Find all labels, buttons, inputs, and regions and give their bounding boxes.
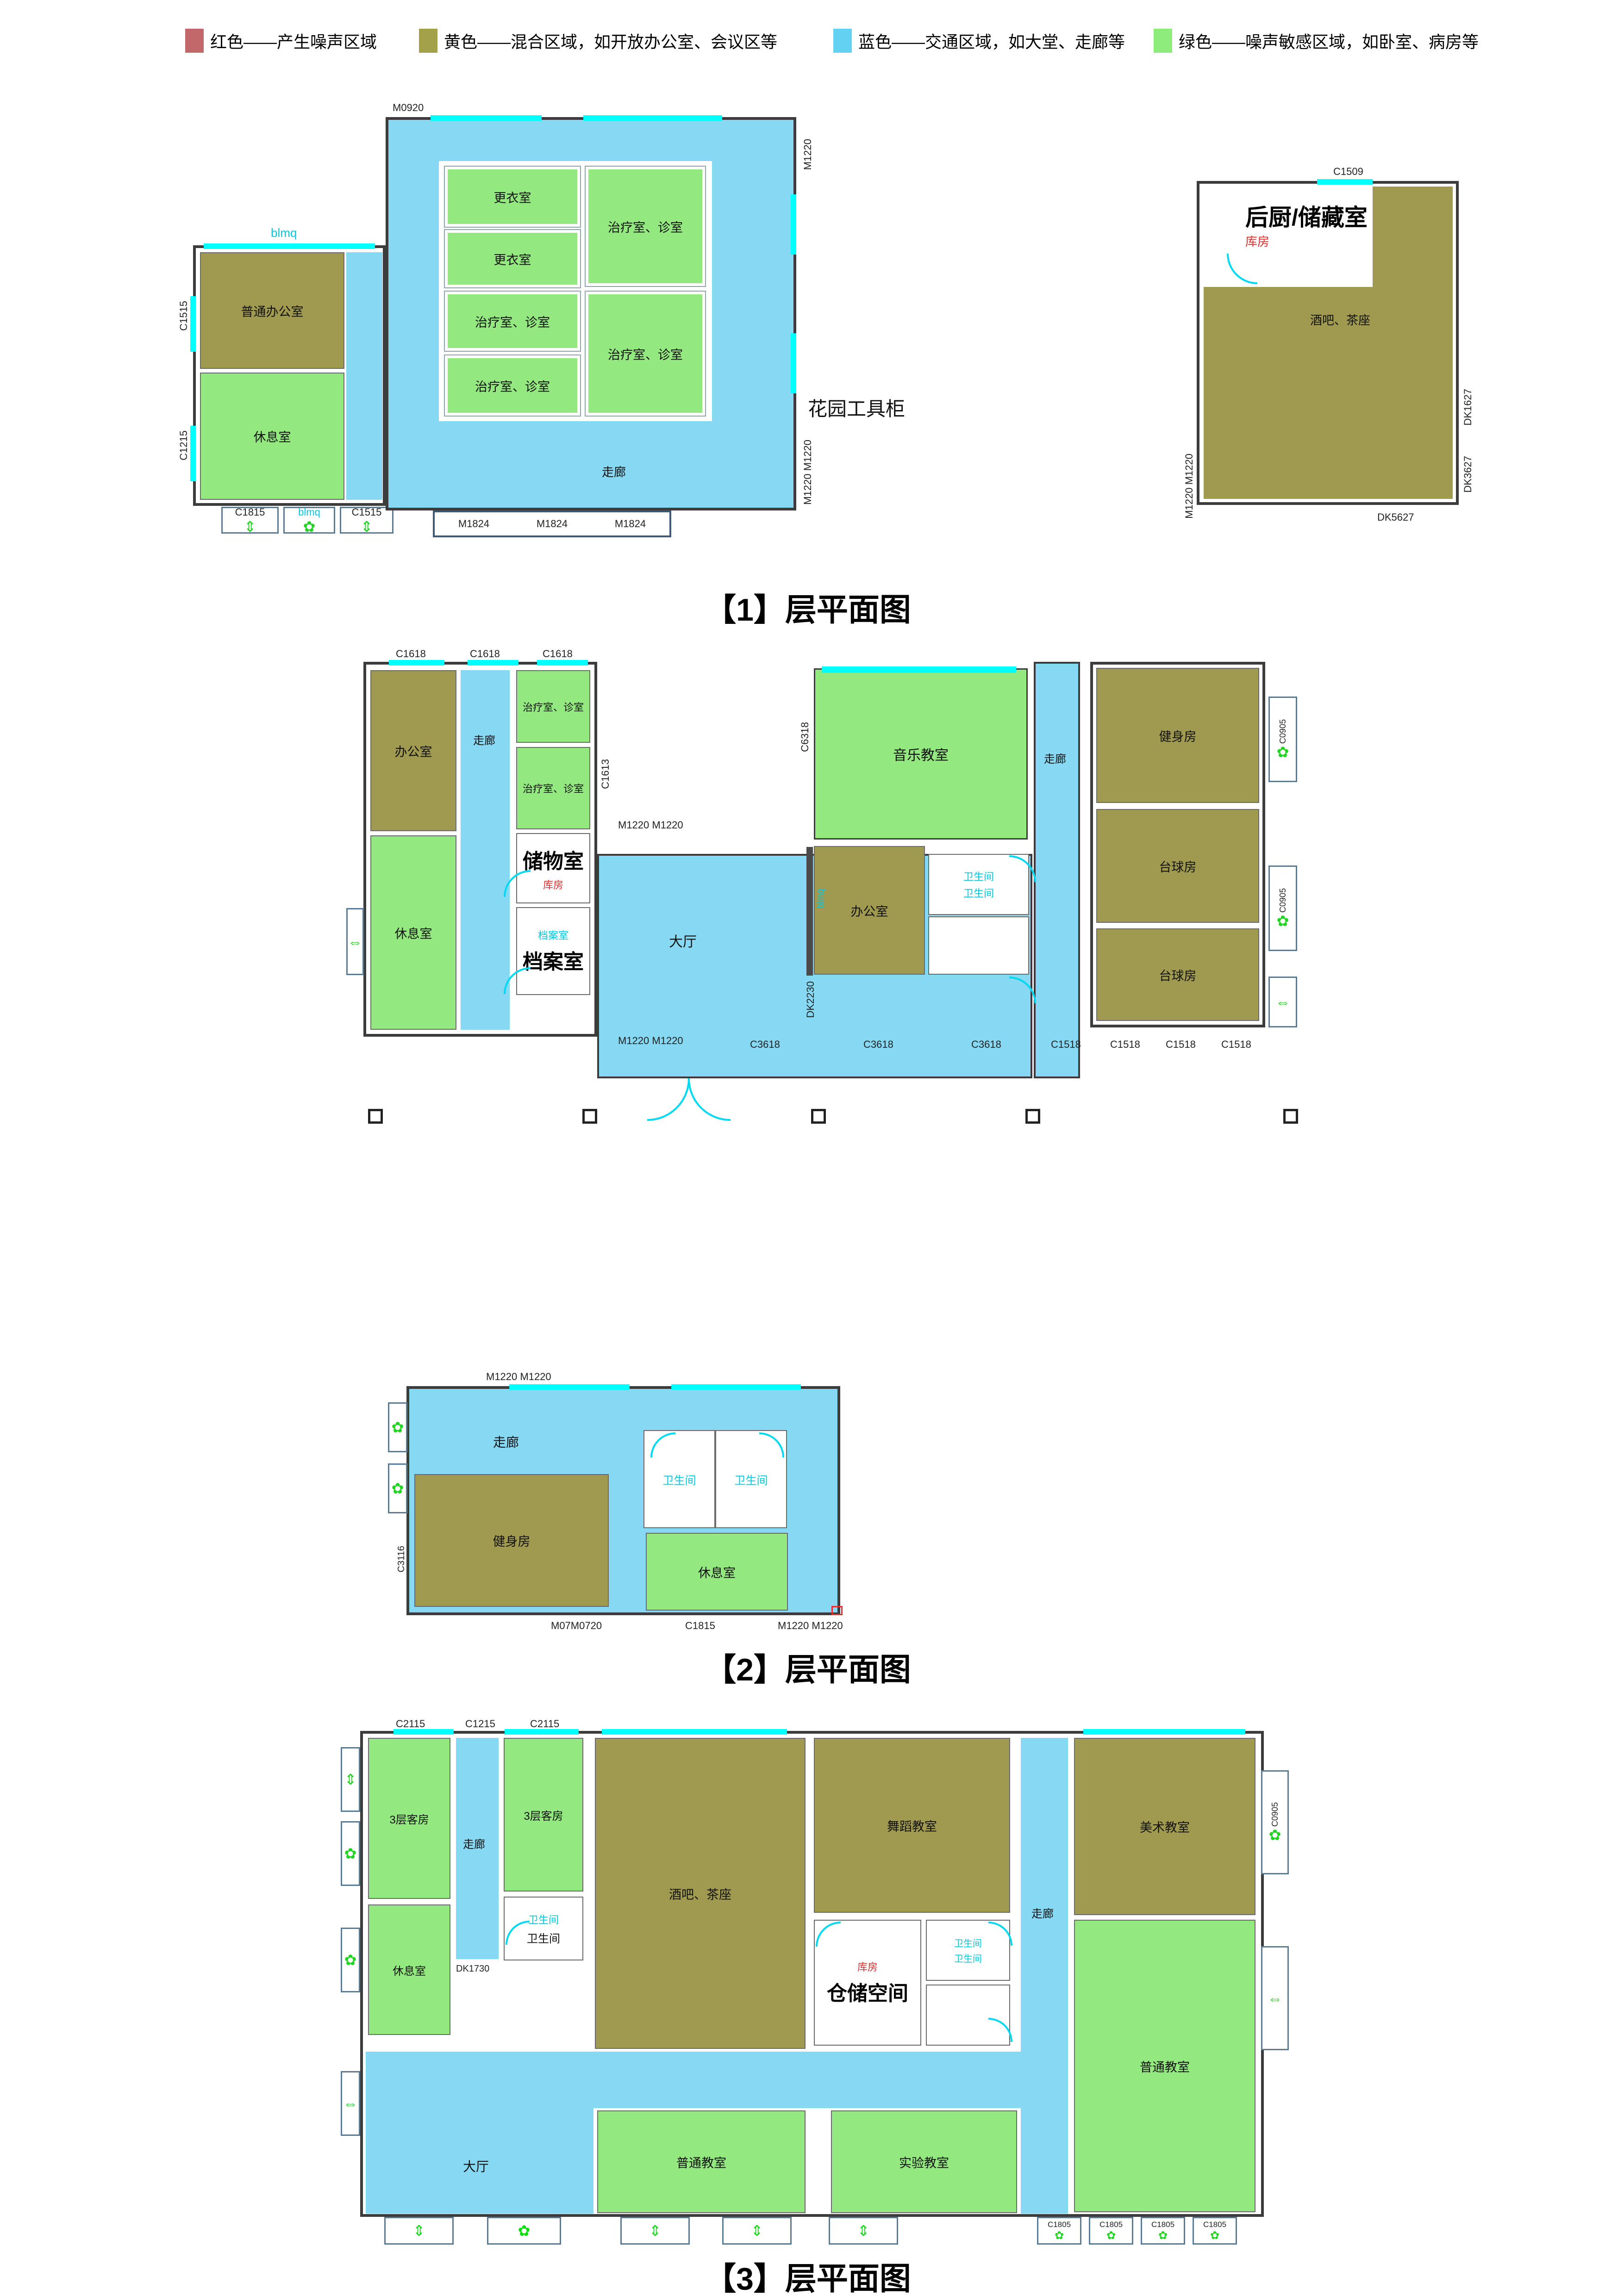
room-treatment-4: 治疗室、诊室 bbox=[586, 292, 705, 416]
window-strip bbox=[190, 296, 196, 352]
window-bay: ⇔ bbox=[346, 908, 364, 975]
window-mark: C1805 bbox=[1151, 2220, 1174, 2229]
legend-label: 红色——产生噪声区域 bbox=[210, 29, 377, 53]
wall-bar bbox=[806, 847, 813, 976]
room-treatment-2: 治疗室、诊室 bbox=[445, 355, 580, 416]
window-strip bbox=[537, 660, 588, 666]
yellow-swatch bbox=[419, 29, 437, 53]
column-marker bbox=[1283, 1109, 1298, 1124]
window-mark: C1518 bbox=[1221, 1039, 1251, 1051]
entry-porch: M1824 M1824 M1824 bbox=[433, 510, 671, 537]
window-bay: C1805 ✿ bbox=[1037, 2217, 1081, 2245]
door-mark: M1220 M1220 bbox=[618, 819, 683, 831]
column-marker bbox=[582, 1109, 597, 1124]
room-office-2f-center: 办公室 bbox=[814, 846, 925, 975]
window-bay: ✿ bbox=[341, 1928, 360, 1992]
window-bay: ⇔ bbox=[1268, 977, 1297, 1027]
warehouse-label: 仓储空间 bbox=[827, 1977, 908, 2006]
window-mark: C1805 bbox=[1048, 2220, 1071, 2229]
window-mark: DK1627 bbox=[1462, 389, 1474, 426]
window-mark-blmq: blmq bbox=[816, 889, 826, 908]
toilet-label: 卫生间 bbox=[963, 869, 994, 884]
window-mark: C1618 bbox=[396, 648, 426, 660]
window-mark: C1518 bbox=[1110, 1039, 1140, 1051]
room-changing-2: 更衣室 bbox=[445, 230, 580, 287]
corridor-label: 走廊 bbox=[602, 463, 626, 480]
annex-corridor-area bbox=[346, 252, 382, 500]
corridor-label: 走廊 bbox=[1031, 1904, 1054, 1921]
door-mark: M1220 M1220 bbox=[618, 1035, 683, 1047]
flower-icon: ✿ bbox=[344, 1953, 357, 1967]
arrow-icon: ⇕ bbox=[649, 2223, 662, 2238]
corridor-3f-right bbox=[1021, 1738, 1068, 2214]
toilet-label: 卫生间 bbox=[735, 1471, 768, 1487]
room-rest: 休息室 bbox=[200, 373, 344, 500]
window-bay: C1515 ⇕ bbox=[340, 507, 394, 534]
room-classroom-3f-mid: 普通教室 bbox=[597, 2110, 806, 2213]
window-strip bbox=[468, 660, 518, 666]
arrow-icon: ⇔ bbox=[348, 934, 362, 949]
window-mark: DK5627 bbox=[1377, 511, 1414, 523]
window-bay: ⇕ bbox=[341, 1747, 360, 1812]
arrow-icon: ⇕ bbox=[361, 519, 373, 534]
window-mark-blmq: blmq bbox=[271, 226, 297, 240]
window-mark: C0905 bbox=[1278, 888, 1288, 913]
window-mark: C1515 bbox=[178, 301, 190, 331]
window-bay: ✿ bbox=[388, 1463, 407, 1513]
flower-icon: ✿ bbox=[303, 519, 316, 534]
window-bay: ⇔ bbox=[341, 2071, 360, 2136]
legend-item-red: 红色——产生噪声区域 bbox=[185, 29, 377, 53]
window-mark: C1613 bbox=[600, 759, 612, 789]
arrow-icon: ⇕ bbox=[751, 2223, 763, 2238]
window-strip bbox=[509, 1384, 630, 1390]
red-swatch bbox=[185, 29, 204, 53]
corridor-label: 走廊 bbox=[473, 731, 495, 747]
window-bay: blmq ✿ bbox=[283, 507, 335, 534]
room-rest-2f: 休息室 bbox=[370, 835, 456, 1030]
room-bar-3f: 酒吧、茶座 bbox=[595, 1738, 806, 2049]
window-mark: DK1730 bbox=[456, 1964, 489, 1974]
toilet-label: 卫生间 bbox=[663, 1471, 696, 1487]
blue-swatch bbox=[833, 29, 852, 53]
room-dance-3f: 舞蹈教室 bbox=[814, 1738, 1010, 1913]
room-lab-3f: 实验教室 bbox=[831, 2110, 1017, 2213]
window-mark: C1515 bbox=[352, 506, 382, 518]
corridor-label: 走廊 bbox=[493, 1432, 519, 1451]
corridor-label: 走廊 bbox=[1044, 750, 1066, 766]
room-changing-1: 更衣室 bbox=[445, 167, 580, 227]
window-strip bbox=[791, 333, 796, 393]
room-rest-3f: 休息室 bbox=[368, 1904, 450, 2035]
room-music-2f: 音乐教室 bbox=[814, 668, 1028, 840]
window-mark: DK2230 bbox=[805, 981, 817, 1018]
room-rest-annex2f: 休息室 bbox=[646, 1533, 788, 1611]
arrow-icon: ⇕ bbox=[413, 2223, 425, 2238]
column-marker bbox=[811, 1109, 826, 1124]
room-bar-tea-area-upper bbox=[1373, 187, 1453, 293]
window-strip bbox=[204, 243, 375, 249]
window-mark: C1805 bbox=[1099, 2220, 1123, 2229]
corridor-2f-right bbox=[1034, 662, 1080, 1078]
legend-label: 绿色——噪声敏感区域，如卧室、病房等 bbox=[1179, 29, 1479, 53]
flower-icon: ✿ bbox=[1055, 2230, 1064, 2241]
storage-label: 储物室 bbox=[523, 845, 584, 874]
window-bay: ⇕ bbox=[829, 2217, 898, 2245]
room-art-3f: 美术教室 bbox=[1074, 1738, 1255, 1915]
window-mark: C0905 bbox=[1270, 1802, 1280, 1827]
window-mark: C0905 bbox=[1278, 719, 1288, 744]
window-mark: C3618 bbox=[971, 1039, 1001, 1051]
lobby-label: 大厅 bbox=[669, 930, 697, 951]
arrow-icon: ⇔ bbox=[343, 2096, 358, 2111]
corridor-label: 走廊 bbox=[463, 1835, 485, 1851]
room-guest3f-1: 3层客房 bbox=[368, 1738, 450, 1899]
door-mark: M1220 M1220 bbox=[778, 1620, 843, 1632]
window-bay: ⇕ bbox=[384, 2217, 454, 2245]
kufang-red-note: 库房 bbox=[1245, 232, 1368, 249]
flower-icon: ✿ bbox=[1277, 745, 1289, 759]
room-white-2f bbox=[928, 916, 1029, 975]
kitchen-storage-label-group: 后厨/储藏室 库房 bbox=[1245, 199, 1368, 249]
toilet-label: 卫生间 bbox=[527, 1929, 560, 1946]
window-bay: ✿ bbox=[388, 1402, 407, 1452]
door-mark: M1220 M1220 bbox=[1183, 454, 1195, 519]
legend-label: 黄色——混合区域，如开放办公室、会议区等 bbox=[444, 29, 777, 53]
window-strip bbox=[1083, 1729, 1245, 1735]
window-bay: ⇔ bbox=[1261, 1946, 1289, 2050]
window-mark: C2115 bbox=[396, 1718, 425, 1730]
toilet-label: 卫生间 bbox=[954, 1936, 982, 1949]
room-treatment-1: 治疗室、诊室 bbox=[445, 292, 580, 351]
entrance-door-arc-left bbox=[647, 1078, 690, 1121]
kufang-red-note: 库房 bbox=[857, 1959, 878, 1974]
green-swatch bbox=[1154, 29, 1172, 53]
entrance-door-arc-right bbox=[688, 1078, 731, 1121]
window-mark: C6318 bbox=[799, 722, 811, 752]
door-mark: M0920 bbox=[393, 102, 424, 114]
arrow-icon: ⇕ bbox=[344, 1772, 357, 1787]
corridor-3f-horizontal bbox=[366, 2052, 1032, 2108]
window-strip bbox=[1317, 179, 1373, 185]
window-strip bbox=[583, 115, 722, 121]
window-mark-blmq: blmq bbox=[298, 506, 320, 518]
window-mark: C3618 bbox=[750, 1039, 780, 1051]
door-mark: M1824 bbox=[615, 518, 646, 530]
window-bay: ✿ bbox=[341, 1821, 360, 1886]
door-mark: M1824 bbox=[537, 518, 568, 530]
window-mark: C1805 bbox=[1203, 2220, 1226, 2229]
window-mark: C1215 bbox=[465, 1718, 495, 1730]
window-strip bbox=[505, 1729, 579, 1735]
flower-icon: ✿ bbox=[1269, 1828, 1281, 1842]
room-treatment-2f-2: 治疗室、诊室 bbox=[516, 747, 590, 829]
flower-icon: ✿ bbox=[392, 1481, 404, 1496]
window-mark: C1618 bbox=[543, 648, 573, 660]
room-general-office: 普通办公室 bbox=[200, 252, 344, 369]
arrow-icon: ⇕ bbox=[244, 519, 256, 534]
legend-label: 蓝色——交通区域，如大堂、走廊等 bbox=[858, 29, 1125, 53]
window-bay: C0905 ✿ bbox=[1268, 697, 1297, 782]
room-treatment-3: 治疗室、诊室 bbox=[586, 167, 705, 286]
window-mark: C3618 bbox=[863, 1039, 893, 1051]
door-mark: M1220 bbox=[802, 139, 814, 170]
window-bay: C0905 ✿ bbox=[1268, 865, 1297, 951]
window-mark: C2115 bbox=[530, 1718, 559, 1730]
room-billiard-2f-2: 台球房 bbox=[1096, 928, 1259, 1021]
legend-item-yellow: 黄色——混合区域，如开放办公室、会议区等 bbox=[419, 29, 777, 53]
window-bay: ✿ bbox=[487, 2217, 561, 2245]
legend-item-green: 绿色——噪声敏感区域，如卧室、病房等 bbox=[1154, 29, 1479, 53]
room-gym-2f: 健身房 bbox=[1096, 668, 1259, 803]
window-mark: C1815 bbox=[685, 1620, 715, 1632]
room-guest3f-2: 3层客房 bbox=[504, 1738, 583, 1892]
window-mark: C1215 bbox=[178, 430, 190, 460]
window-mark: C1518 bbox=[1051, 1039, 1081, 1051]
archive-cyan-note: 档案室 bbox=[538, 927, 568, 942]
legend-item-blue: 蓝色——交通区域，如大堂、走廊等 bbox=[833, 29, 1125, 53]
window-bay: C1805 ✿ bbox=[1089, 2217, 1133, 2245]
door-mark: M1824 bbox=[458, 518, 489, 530]
window-strip bbox=[190, 426, 196, 481]
window-mark: DK3627 bbox=[1462, 456, 1474, 493]
arrow-icon: ⇕ bbox=[857, 2223, 870, 2238]
archive-label: 档案室 bbox=[523, 945, 584, 975]
arrow-icon: ⇔ bbox=[1268, 1991, 1282, 2006]
window-bay: C0905 ✿ bbox=[1261, 1770, 1289, 1874]
red-corner-marker bbox=[831, 1606, 843, 1615]
window-strip bbox=[791, 194, 796, 255]
caption-floor3: 【3】层平面图 bbox=[646, 2253, 970, 2296]
room-classroom-3f-right: 普通教室 bbox=[1074, 1920, 1255, 2212]
room-billiard-2f-1: 台球房 bbox=[1096, 809, 1259, 923]
window-mark: C1509 bbox=[1333, 166, 1363, 178]
flower-icon: ✿ bbox=[392, 1420, 404, 1435]
window-bay: ⇕ bbox=[722, 2217, 792, 2245]
noise-zoning-floorplan-sheet: 红色——产生噪声区域 黄色——混合区域，如开放办公室、会议区等 蓝色——交通区域… bbox=[0, 0, 1624, 2296]
window-bay: ⇕ bbox=[620, 2217, 690, 2245]
window-strip bbox=[602, 1729, 787, 1735]
window-mark: C1518 bbox=[1166, 1039, 1196, 1051]
caption-floor2: 【2】层平面图 bbox=[646, 1644, 970, 1690]
door-mark: M07M0720 bbox=[551, 1620, 602, 1632]
lobby-label: 大厅 bbox=[463, 2157, 489, 2175]
window-strip bbox=[431, 115, 542, 121]
window-strip bbox=[394, 1729, 454, 1735]
window-mark: C1815 bbox=[235, 506, 265, 518]
room-bar-tea-label: 酒吧、茶座 bbox=[1310, 311, 1370, 328]
door-mark: M1220 M1220 bbox=[802, 440, 814, 505]
toilet-label: 卫生间 bbox=[954, 1951, 982, 1965]
flower-icon: ✿ bbox=[518, 2223, 531, 2238]
window-bay: C1805 ✿ bbox=[1141, 2217, 1185, 2245]
room-treatment-2f-1: 治疗室、诊室 bbox=[516, 670, 590, 743]
flower-icon: ✿ bbox=[1277, 914, 1289, 928]
window-mark: C1618 bbox=[470, 648, 500, 660]
arrow-icon: ⇔ bbox=[1275, 995, 1290, 1009]
window-bay: C1815 ⇕ bbox=[221, 507, 279, 534]
window-strip bbox=[671, 1384, 801, 1390]
flower-icon: ✿ bbox=[1158, 2230, 1168, 2241]
column-marker bbox=[1025, 1109, 1040, 1124]
garden-cabinet-note: 花园工具柜 bbox=[808, 393, 905, 422]
room-kitchen-storage: 后厨/储藏室 bbox=[1245, 199, 1368, 232]
flower-icon: ✿ bbox=[344, 1846, 357, 1861]
window-strip bbox=[822, 666, 1016, 673]
window-bay: C1805 ✿ bbox=[1193, 2217, 1237, 2245]
window-strip bbox=[389, 660, 444, 666]
flower-icon: ✿ bbox=[1210, 2230, 1219, 2241]
column-marker bbox=[368, 1109, 383, 1124]
kufang-red-note: 库房 bbox=[543, 877, 563, 892]
window-mark: C3116 bbox=[396, 1546, 407, 1572]
corridor-2f-left bbox=[461, 670, 510, 1030]
caption-floor1: 【1】层平面图 bbox=[646, 584, 970, 630]
room-office-2f: 办公室 bbox=[370, 670, 456, 831]
toilet-label: 卫生间 bbox=[963, 885, 994, 900]
flower-icon: ✿ bbox=[1106, 2230, 1116, 2241]
room-gym-annex2f: 健身房 bbox=[414, 1474, 609, 1607]
door-mark: M1220 M1220 bbox=[486, 1371, 551, 1383]
toilet-label: 卫生间 bbox=[528, 1912, 559, 1927]
